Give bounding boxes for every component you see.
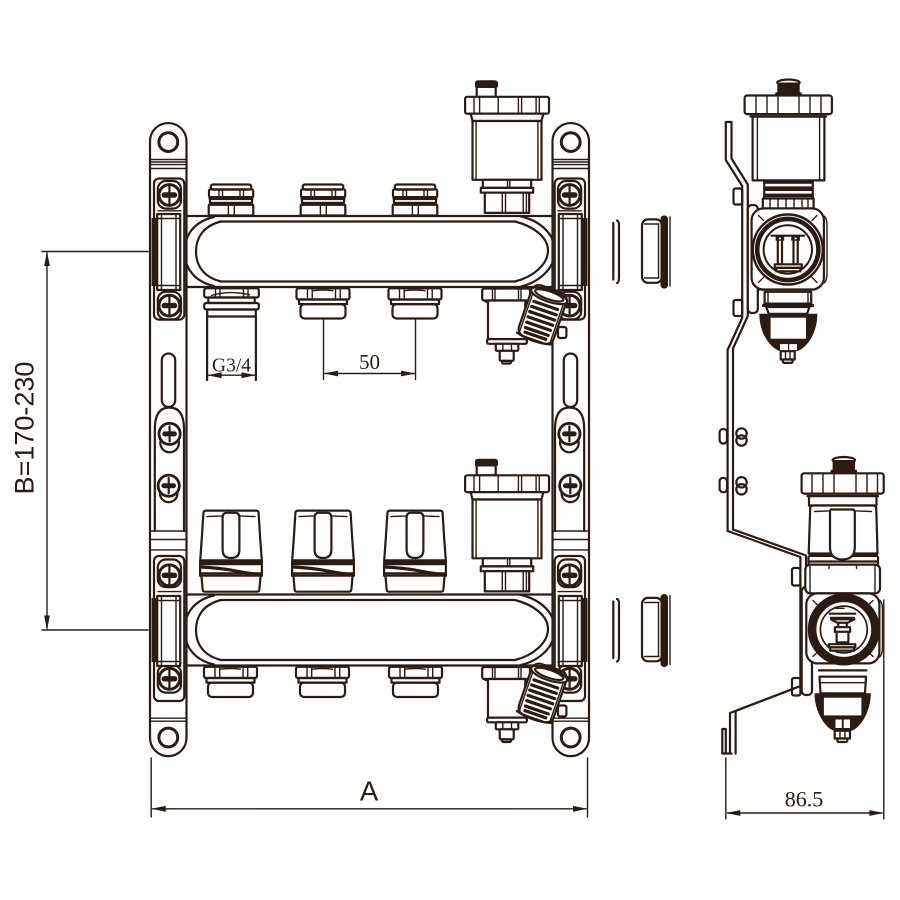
svg-text:B=170-230: B=170-230 — [10, 362, 40, 495]
svg-text:50: 50 — [359, 350, 380, 374]
svg-text:G3/4: G3/4 — [212, 356, 251, 377]
svg-text:86.5: 86.5 — [785, 787, 824, 812]
svg-text:A: A — [360, 776, 379, 807]
